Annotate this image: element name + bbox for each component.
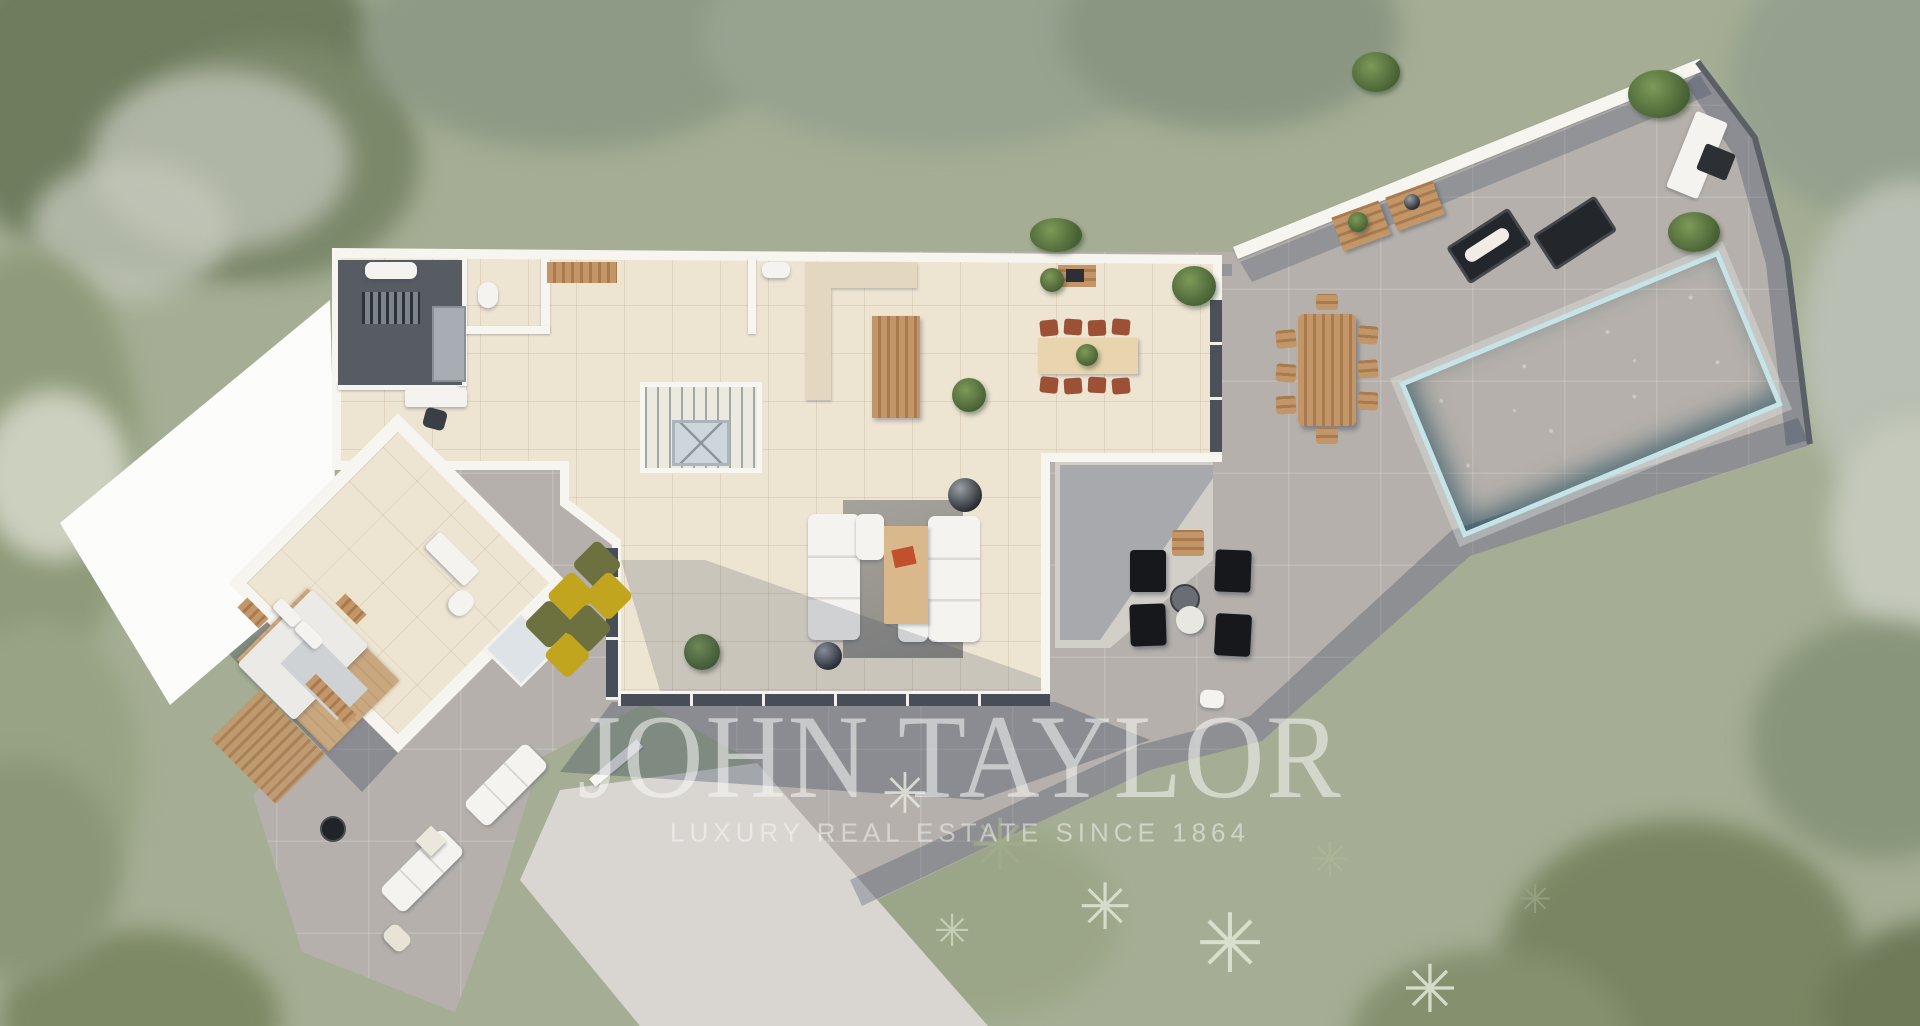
agave-plant: ✳ — [1310, 836, 1350, 884]
outdoor-chair — [1358, 391, 1379, 410]
kitchen-island — [872, 316, 920, 418]
outdoor-chair — [1316, 294, 1338, 310]
aerial-villa-render: ✳ ✳ ✳ ✳ ✳ ✳ ✳ ✳ JOHN TAYLOR LUXURY REAL … — [0, 0, 1920, 1026]
outdoor-chair — [1357, 359, 1378, 378]
planter-pot — [1404, 194, 1420, 210]
sofa — [928, 516, 980, 642]
courtyard-bush — [952, 378, 986, 412]
outdoor-chair — [1316, 428, 1338, 444]
agave-plant: ✳ — [934, 910, 971, 954]
stair-skylight — [672, 420, 730, 466]
outdoor-chair — [1275, 329, 1296, 349]
drying-rack — [362, 292, 420, 324]
kitchen-counter — [805, 262, 917, 288]
outdoor-dining-table — [1298, 314, 1356, 426]
planter-plant — [1348, 212, 1368, 232]
toilet — [478, 282, 498, 308]
agave-plant: ✳ — [882, 767, 929, 823]
sideboard-grill — [1066, 269, 1084, 282]
fence-palm — [1628, 70, 1690, 118]
coffee-table — [884, 526, 928, 624]
round-table — [1176, 606, 1204, 634]
dining-chair — [1063, 377, 1082, 394]
agave-plant: ✳ — [970, 809, 1030, 881]
washer — [365, 262, 417, 279]
round-table — [320, 816, 346, 842]
lounge-side-bench — [1172, 530, 1204, 556]
decor-sphere — [948, 478, 982, 512]
dining-chair — [1039, 319, 1059, 337]
table-plant — [1076, 344, 1098, 366]
ottoman — [1199, 689, 1224, 709]
lounge-armchair — [1214, 549, 1251, 592]
lounge-armchair — [1130, 550, 1166, 592]
glass-doors-south — [618, 694, 1050, 706]
dining-chair — [1063, 318, 1082, 335]
agave-plant: ✳ — [1518, 880, 1552, 920]
lounge-armchair — [1129, 603, 1166, 646]
dining-chair — [1111, 377, 1130, 395]
outdoor-chair — [1276, 395, 1297, 414]
kitchen-counter — [805, 288, 831, 400]
indoor-palm — [1172, 266, 1216, 306]
agave-plant: ✳ — [1196, 904, 1265, 986]
sofa-chaise — [856, 514, 884, 560]
dining-chair — [1039, 376, 1059, 394]
dining-chair — [1088, 377, 1107, 394]
agave-plant: ✳ — [1078, 876, 1132, 940]
glass-doors-east — [1210, 300, 1222, 455]
toilet — [762, 262, 790, 278]
wall — [462, 326, 550, 334]
utility-cabinet — [432, 306, 466, 382]
outdoor-chair — [1275, 363, 1296, 382]
wall-bush — [1030, 218, 1082, 252]
office-desk — [405, 389, 467, 407]
potted-plant — [1040, 268, 1064, 292]
pool-corner-bush — [1668, 212, 1720, 252]
outdoor-chair — [1357, 325, 1378, 345]
wall — [748, 258, 756, 334]
lounge-armchair — [1214, 613, 1252, 657]
hall-wardrobe — [547, 262, 617, 283]
tree-canopy — [1750, 620, 1920, 860]
fence-bush — [1352, 52, 1400, 92]
agave-plant: ✳ — [1402, 957, 1457, 1023]
dining-chair — [1111, 318, 1130, 336]
dining-chair — [1088, 320, 1107, 337]
